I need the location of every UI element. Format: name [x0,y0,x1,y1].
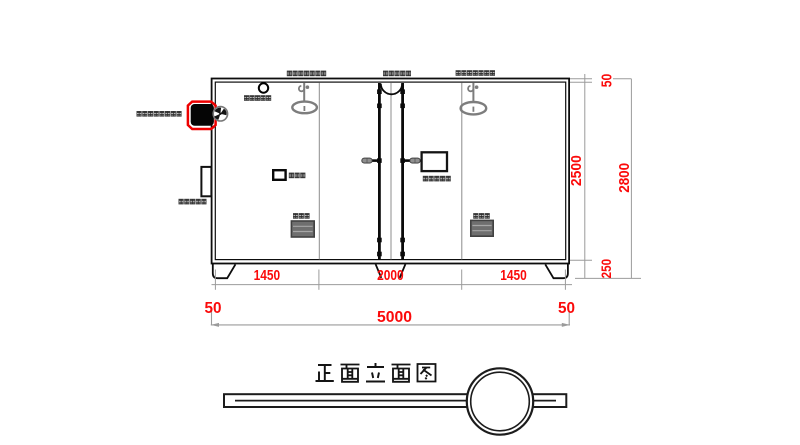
svg-text:1450: 1450 [500,268,527,284]
svg-text:50: 50 [205,300,222,317]
svg-text:5000: 5000 [377,309,412,326]
svg-text:250: 250 [598,259,614,279]
svg-text:50: 50 [558,300,575,317]
svg-text:2000: 2000 [377,268,404,284]
svg-text:50: 50 [598,74,615,88]
svg-text:2800: 2800 [617,163,633,193]
svg-text:1450: 1450 [254,268,281,284]
svg-text:2500: 2500 [569,155,585,186]
